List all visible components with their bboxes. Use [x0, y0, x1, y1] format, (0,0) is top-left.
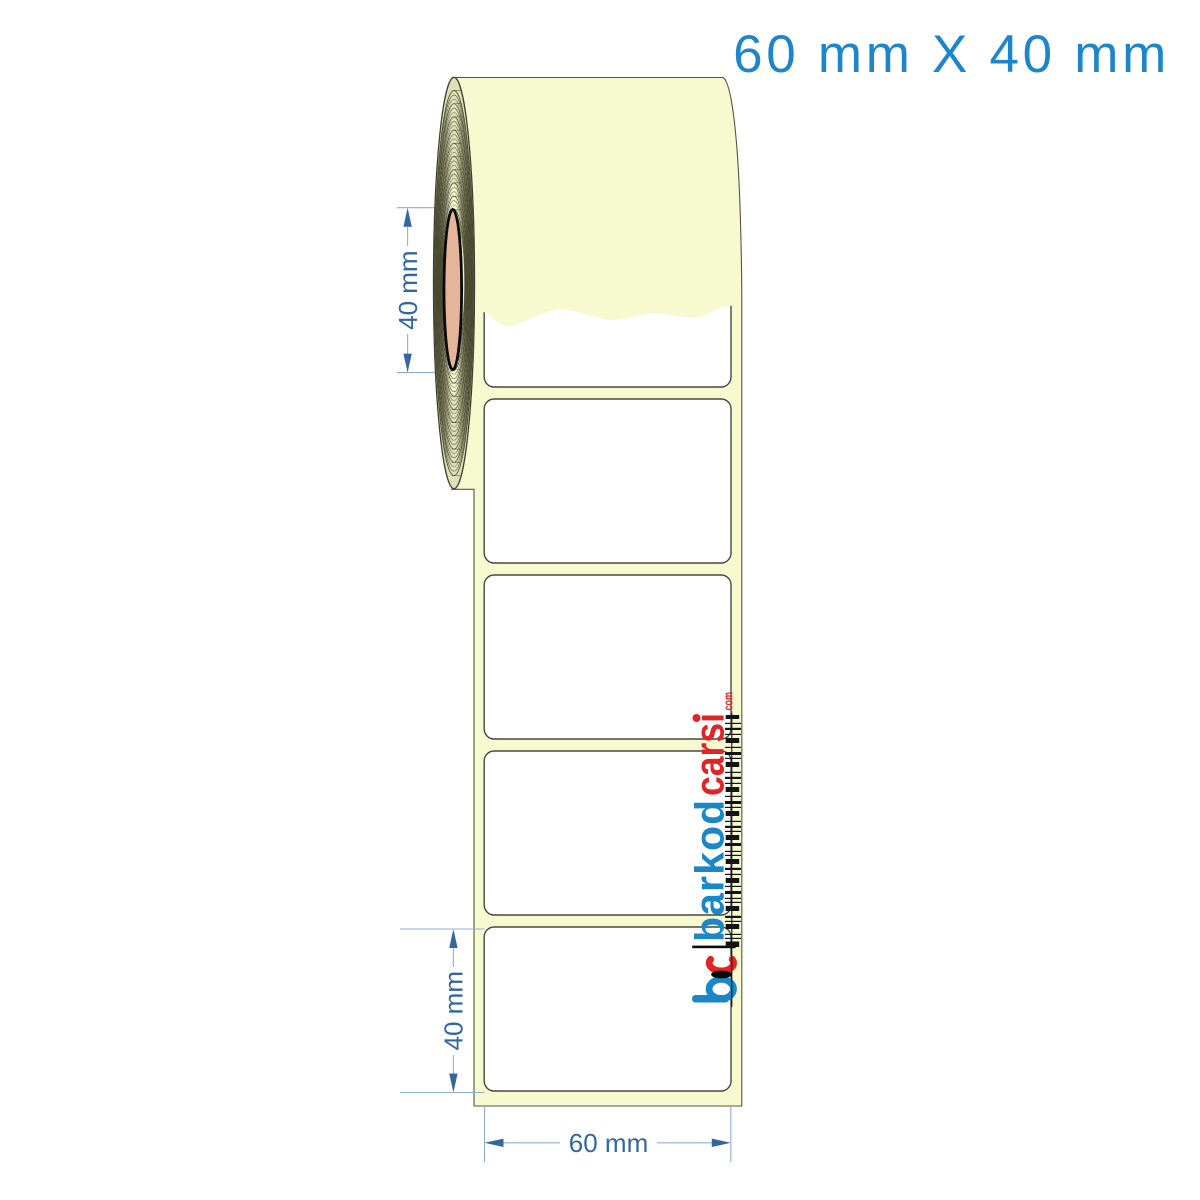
svg-text:barkod: barkod	[687, 799, 733, 942]
svg-text:40 mm: 40 mm	[393, 250, 423, 329]
svg-text:40 mm: 40 mm	[439, 971, 469, 1050]
svg-text:60 mm: 60 mm	[569, 1128, 648, 1158]
svg-text:60 mm X 40 mm: 60 mm X 40 mm	[733, 25, 1170, 84]
svg-text:.com: .com	[722, 692, 736, 713]
